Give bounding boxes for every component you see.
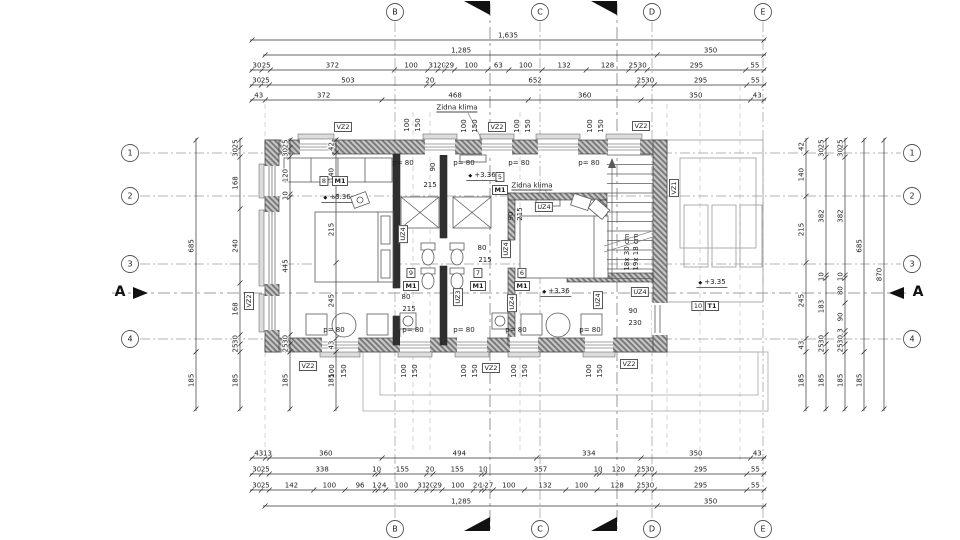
dimension-value: 90 (837, 312, 845, 321)
window-size-label: 150 (471, 364, 479, 377)
dimension-value: 25 (232, 344, 240, 353)
parapet-height-label: p= 80 (579, 326, 600, 334)
dimension-value: 295 (694, 77, 707, 85)
dimension-value: 185 (798, 374, 806, 387)
dimension-value: 25 (282, 139, 290, 148)
grid-label: B (392, 525, 398, 534)
dimension-value: 20 (425, 77, 434, 85)
stair-size-label: 19x 18 cm (632, 233, 640, 270)
dimension-value: 350 (689, 450, 702, 458)
dimension-value: 55 (751, 482, 760, 490)
dimension-value: 372 (317, 92, 330, 100)
dimension-value: 25 (837, 139, 845, 148)
parapet-height-label: p= 80 (402, 326, 423, 334)
room-type-tag: T1 (705, 301, 719, 311)
dimension-value: 1,285 (451, 498, 471, 506)
room-type-tag: M1 (514, 281, 530, 291)
dimension-value: 338 (315, 466, 328, 474)
door-size-label: 215 (423, 181, 436, 189)
dimension-value: 30 (645, 466, 654, 474)
window-size-label: 100 (400, 364, 408, 377)
wall-type-tag: VZ2 (488, 122, 506, 132)
dimension-value: 30 (282, 148, 290, 157)
dimension-value: 128 (610, 482, 623, 490)
dimension-value: 445 (282, 259, 290, 272)
room-type-tag: M1 (403, 281, 419, 291)
bed-right (520, 194, 610, 278)
dimension-value: 360 (578, 92, 591, 100)
dimension-value: 140 (798, 168, 806, 181)
dimension-value: 27 (484, 482, 493, 490)
dimension-value: 245 (328, 294, 336, 307)
dimension-value: 25 (637, 466, 646, 474)
door-size-label: 90 (429, 163, 437, 172)
shower-right (453, 197, 491, 228)
shower-left (401, 197, 439, 228)
stair-size-label: 18x 30 cm (623, 233, 631, 270)
window-size-label: 100 (460, 364, 468, 377)
dimension-value: 30 (645, 77, 654, 85)
terrace-door (652, 303, 668, 335)
dimension-value: 350 (704, 498, 717, 506)
room-type-tag: M1 (470, 281, 486, 291)
dimension-value: 25 (261, 482, 270, 490)
dimension-value: 295 (694, 482, 707, 490)
window-size-label: 100 (585, 364, 593, 377)
grid-label: 4 (127, 335, 132, 344)
room-type-tag: M1 (492, 185, 508, 195)
dimension-value: 30 (252, 482, 261, 490)
dimension-value: 100 (502, 482, 515, 490)
dimension-value: 29 (433, 482, 442, 490)
dimension-value: 168 (232, 176, 240, 189)
dimension-value: 43 (798, 341, 806, 350)
dimension-value: 25 (837, 343, 845, 352)
wall-ac-label: Zidna klima (511, 182, 552, 191)
parapet-height-label: p= 80 (453, 326, 474, 334)
dimension-value: 245 (798, 294, 806, 307)
dimension-value: 100 (404, 62, 417, 70)
dimension-value: 20 (425, 466, 434, 474)
dining-set-left (306, 313, 388, 337)
dimension-value: 43 (254, 92, 263, 100)
dimension-value: 360 (319, 450, 332, 458)
dimension-value: 100 (323, 482, 336, 490)
dimension-value: 63 (494, 62, 503, 70)
dimension-value: 30 (232, 335, 240, 344)
grid-label: C (537, 525, 543, 534)
dimension-value: 80 (837, 286, 845, 295)
dimension-value: 24 (377, 482, 386, 490)
dimension-value: 1,285 (451, 47, 471, 55)
dimension-value: 468 (448, 92, 461, 100)
window-size-label: 100 (403, 118, 411, 131)
dimension-value: 30 (818, 335, 826, 344)
door-size-label: 90 (629, 307, 638, 315)
room-number-tag: 6 (517, 268, 526, 278)
dimension-value: 30 (638, 62, 647, 70)
window-size-label: 150 (597, 119, 605, 132)
dimension-value: 55 (750, 62, 759, 70)
parapet-height-label: p= 80 (505, 326, 526, 334)
dimension-value: 30 (645, 482, 654, 490)
dimension-value: 43 (254, 450, 263, 458)
wall-type-tag: UZ4 (501, 240, 511, 258)
dimension-value: 382 (818, 209, 826, 222)
dimension-value: 100 (575, 482, 588, 490)
windows-left (259, 164, 280, 332)
dimension-value: 30 (252, 466, 261, 474)
dimension-value: 30 (253, 62, 262, 70)
dimension-value: 42 (798, 142, 806, 151)
dimension-value: 155 (451, 466, 464, 474)
parapet-height-label: p= 80 (323, 326, 344, 334)
window-size-label: 150 (414, 118, 422, 131)
grid-label: D (649, 525, 655, 534)
window-size-label: 150 (596, 364, 604, 377)
wall-type-tag: UZ4 (507, 294, 517, 312)
wall-type-tag: VZ2 (334, 122, 352, 132)
wall-ac-label: Zidna klima (436, 104, 477, 113)
section-marker-a-right: A (913, 288, 924, 296)
grid-label: E (760, 525, 765, 534)
dimension-value: 25 (282, 343, 290, 352)
lower-floor-outline (363, 352, 768, 411)
grid-label: 1 (909, 149, 914, 158)
dimension-value: 100 (464, 62, 477, 70)
wall-type-tag: VZ2 (244, 292, 254, 310)
section-cut-arrows (133, 1, 904, 531)
dimension-value: 215 (328, 223, 336, 236)
dimension-value: 25 (818, 139, 826, 148)
dimension-value: 29 (445, 62, 454, 70)
parapet-height-label: p= 80 (392, 159, 413, 167)
door-size-label: 90 (507, 212, 515, 221)
grid-label: 2 (909, 192, 914, 201)
dimension-value: 30 (252, 77, 261, 85)
dimension-value: 185 (837, 374, 845, 387)
dimension-value: 30 (837, 335, 845, 344)
dimension-value: 120 (612, 466, 625, 474)
grid-label: 1 (127, 149, 132, 158)
dimension-value: 155 (396, 466, 409, 474)
dimension-value: 295 (694, 466, 707, 474)
dimension-value: 128 (601, 62, 614, 70)
dimension-value: 100 (519, 62, 532, 70)
door-size-label: 215 (478, 256, 491, 264)
wall-type-tag: VZ2 (632, 121, 650, 131)
dimension-value: 25 (637, 482, 646, 490)
door-size-label: 215 (402, 305, 415, 313)
dimension-value: 382 (837, 209, 845, 222)
dimension-value: 132 (558, 62, 571, 70)
dimension-value: 100 (451, 482, 464, 490)
grid-label: 2 (127, 192, 132, 201)
dimension-value: 183 (818, 300, 826, 313)
room-type-tag: M1 (332, 176, 348, 186)
window-size-label: 150 (521, 364, 529, 377)
window-size-label: 100 (328, 364, 336, 377)
window-size-label: 100 (513, 119, 521, 132)
floor-plan-canvas: BBCCDDEE112233441,6351,28535030253721003… (0, 0, 960, 540)
wall-type-tag: UZ4 (631, 287, 649, 297)
dimension-value: 652 (528, 77, 541, 85)
wall-type-tag: VZ2 (299, 361, 317, 371)
wall-type-tag: VZ1 (669, 179, 679, 197)
dimension-value: 30 (837, 148, 845, 157)
dimension-value: 42 (328, 142, 336, 151)
dimension-value: 685 (856, 239, 864, 252)
dimension-value: 13 (263, 450, 272, 458)
dimension-value: 25 (261, 77, 270, 85)
room-number-tag: 7 (473, 268, 482, 278)
dimension-value: 215 (798, 223, 806, 236)
dimension-value: 357 (534, 466, 547, 474)
dimension-value: 1,635 (498, 32, 518, 40)
dimension-value: 25 (818, 343, 826, 352)
grid-label: C (537, 8, 543, 17)
dimension-value: 185 (282, 374, 290, 387)
dimension-value: 25 (629, 62, 638, 70)
dimension-value: 240 (232, 239, 240, 252)
dimension-value: 685 (188, 239, 196, 252)
wall-type-tag: UZ4 (398, 225, 408, 243)
grid-label: D (649, 8, 655, 17)
door-size-label: 215 (516, 207, 524, 220)
dimension-value: 43 (753, 450, 762, 458)
dimension-value: 185 (856, 374, 864, 387)
level-marker: +3.35 (696, 278, 727, 288)
dimension-value: 185 (232, 374, 240, 387)
door-size-label: 80 (402, 293, 411, 301)
window-size-label: 150 (411, 364, 419, 377)
parapet-height-label: p= 80 (508, 159, 529, 167)
dimension-value: 30 (232, 148, 240, 157)
door-size-label: 80 (478, 244, 487, 252)
dimension-value: 870 (876, 268, 884, 281)
room-number-tag: 10 (691, 301, 704, 311)
dimension-value: 25 (637, 77, 646, 85)
dimension-value: 142 (285, 482, 298, 490)
window-size-label: 100 (460, 119, 468, 132)
dimension-value: 96 (356, 482, 365, 490)
dimension-value: 120 (282, 169, 290, 182)
window-size-label: 150 (340, 364, 348, 377)
dimension-value: 168 (232, 302, 240, 315)
dimension-value: 185 (188, 374, 196, 387)
dimension-value: 350 (689, 92, 702, 100)
dimension-value: 503 (341, 77, 354, 85)
wall-type-tag: VZ2 (482, 363, 500, 373)
grid-label: 3 (909, 260, 914, 269)
window-size-label: 150 (471, 119, 479, 132)
level-marker: +3.36 (321, 193, 352, 203)
level-marker: +3.36 (540, 287, 571, 297)
dimension-value: 100 (395, 482, 408, 490)
dimension-value: 132 (538, 482, 551, 490)
window-size-label: 150 (524, 119, 532, 132)
grid-label: B (392, 8, 398, 17)
wall-type-tag: UZ4 (535, 202, 553, 212)
dimension-value: 30 (282, 335, 290, 344)
parapet-height-label: p= 80 (578, 159, 599, 167)
dimension-value: 43 (753, 92, 762, 100)
dimension-value: 295 (690, 62, 703, 70)
grid-label: E (760, 8, 765, 17)
parapet-height-label: p= 80 (453, 159, 474, 167)
wall-type-tag: UZ4 (593, 291, 603, 309)
window-size-label: 100 (510, 364, 518, 377)
wall-type-tag: VZ2 (620, 359, 638, 369)
dimension-value: 494 (453, 450, 467, 458)
window-size-label: 100 (586, 119, 594, 132)
grid-label: 3 (127, 260, 132, 269)
room-number-tag: 8 (319, 176, 328, 186)
dimension-value: 350 (704, 47, 717, 55)
dimension-value: 372 (326, 62, 339, 70)
dimension-value: 25 (232, 139, 240, 148)
dimension-value: 43 (328, 341, 336, 350)
dimension-value: 25 (261, 466, 270, 474)
level-marker: +3.36 (466, 171, 497, 181)
door-size-label: 230 (628, 319, 641, 327)
dimension-value: 25 (262, 62, 271, 70)
dimension-value: 55 (751, 466, 760, 474)
wall-type-tag: UZ3 (453, 288, 463, 306)
room-number-tag: 9 (406, 268, 415, 278)
section-marker-a-left: A (115, 288, 126, 296)
dimension-value: 55 (751, 77, 760, 85)
dimension-value: 334 (582, 450, 596, 458)
dimension-value: 185 (818, 374, 826, 387)
dimension-value: 30 (818, 148, 826, 157)
grid-label: 4 (909, 335, 914, 344)
